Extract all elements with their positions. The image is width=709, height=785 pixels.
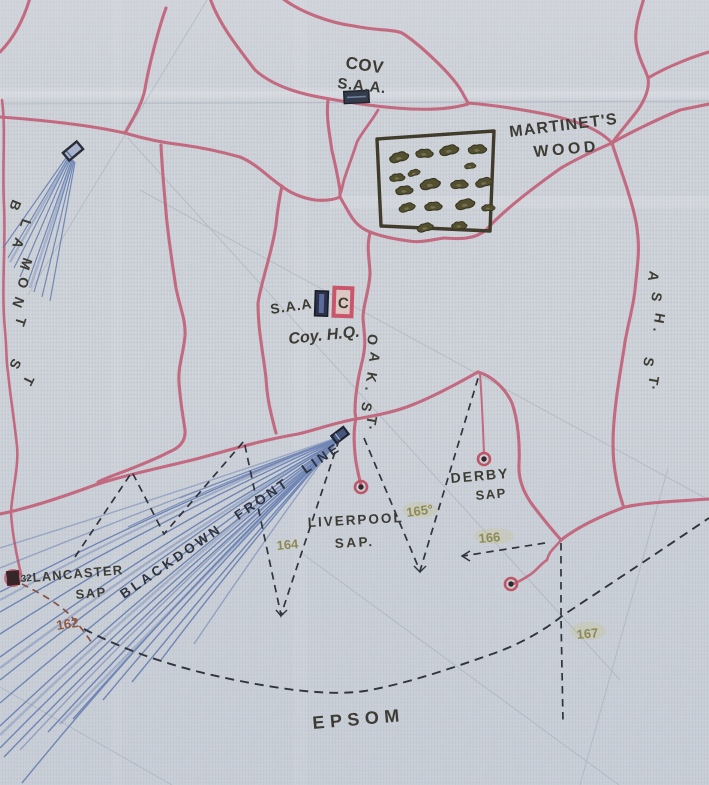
svg-text:166: 166 — [478, 529, 501, 546]
svg-text:164: 164 — [276, 536, 300, 553]
svg-text:162: 162 — [55, 615, 79, 633]
svg-text:SAP.: SAP. — [334, 534, 375, 551]
svg-text:SAP: SAP — [75, 584, 107, 602]
svg-text:167: 167 — [576, 625, 599, 642]
svg-text:SAP: SAP — [475, 485, 507, 503]
svg-text:32: 32 — [20, 573, 32, 585]
svg-text:C: C — [338, 295, 350, 312]
